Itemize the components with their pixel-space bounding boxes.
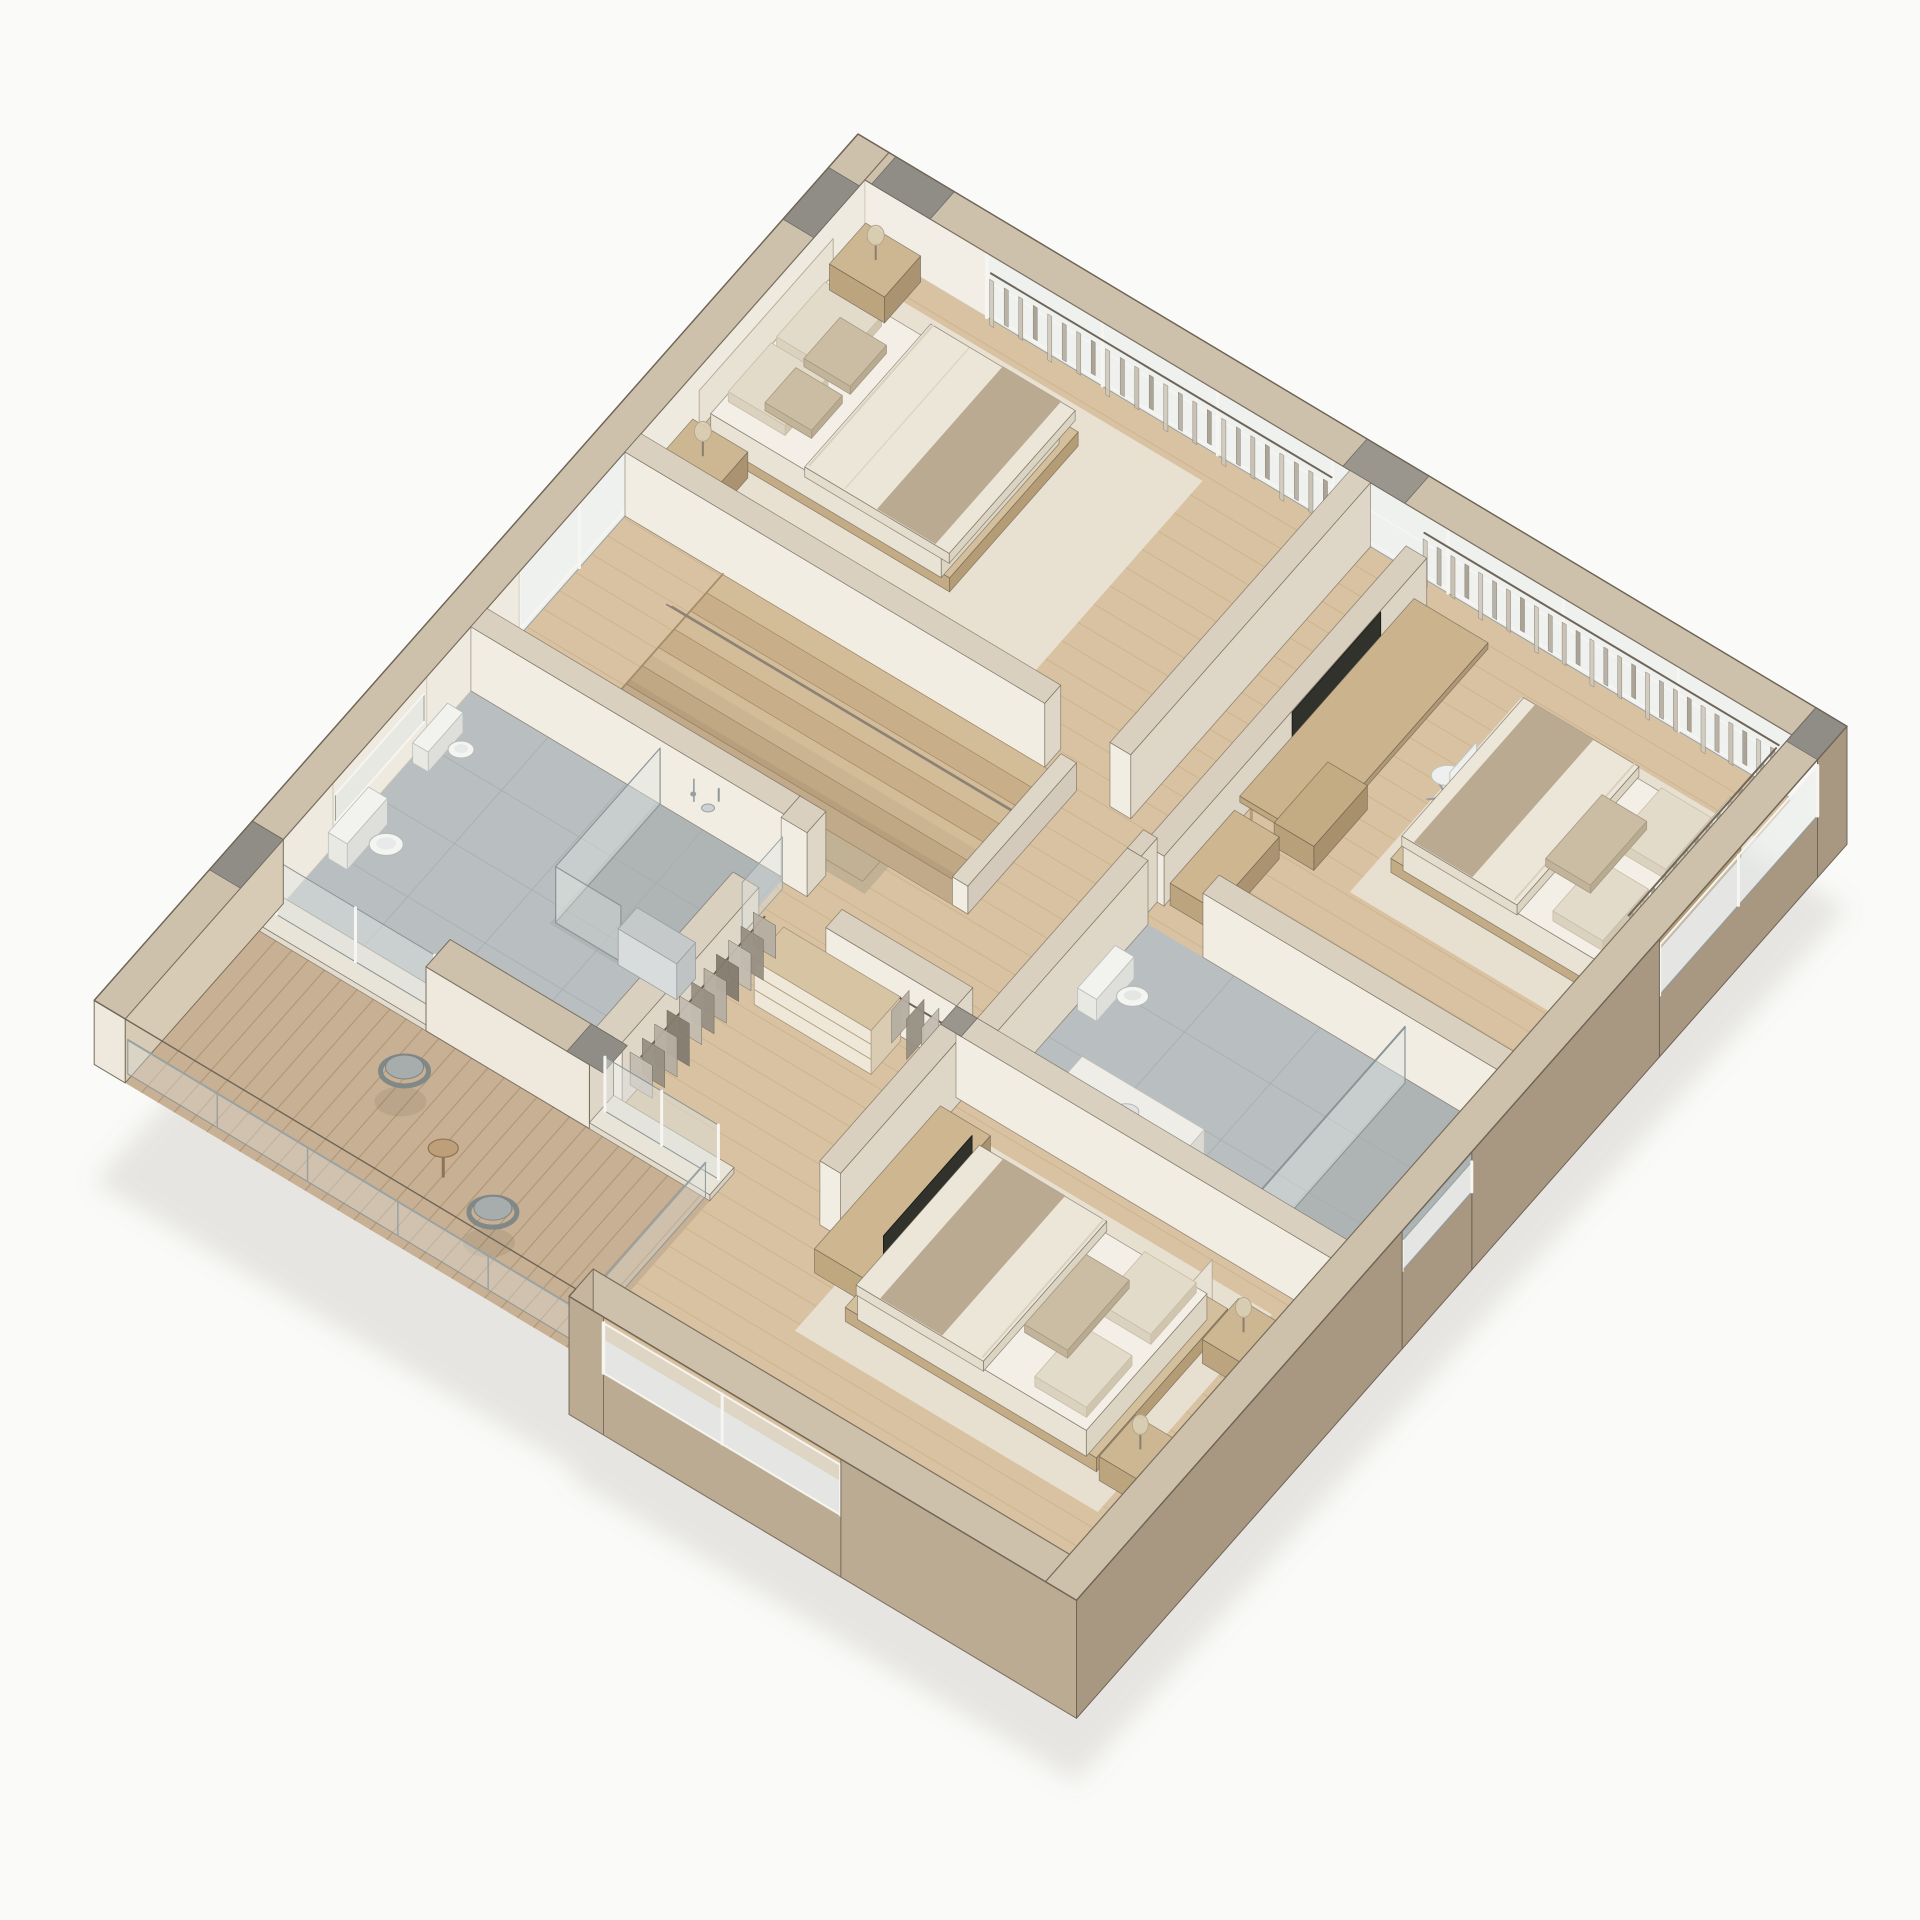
floor-plan-stage <box>0 0 1920 1920</box>
isometric-floor-plan <box>0 0 1920 1920</box>
lamp <box>867 225 884 245</box>
deck-table <box>428 1139 458 1157</box>
shower-head <box>702 804 715 812</box>
lamp <box>1132 1415 1148 1435</box>
wall-bottomleft-outer-a <box>569 1296 603 1435</box>
deck-chair-seat <box>474 1196 512 1220</box>
scene-root <box>94 134 1847 1782</box>
toilet2-bowl-inner <box>1124 990 1142 1000</box>
bidet-bowl-inner <box>454 744 468 753</box>
deck-chair-shadow <box>375 1087 427 1117</box>
toilet1-bowl-inner <box>376 837 396 849</box>
shower-mixer <box>690 792 696 797</box>
deck-chair-seat <box>386 1055 424 1079</box>
lamp <box>694 421 711 441</box>
lamp <box>1236 1298 1252 1318</box>
wall-bath1-closet-a <box>781 796 826 897</box>
